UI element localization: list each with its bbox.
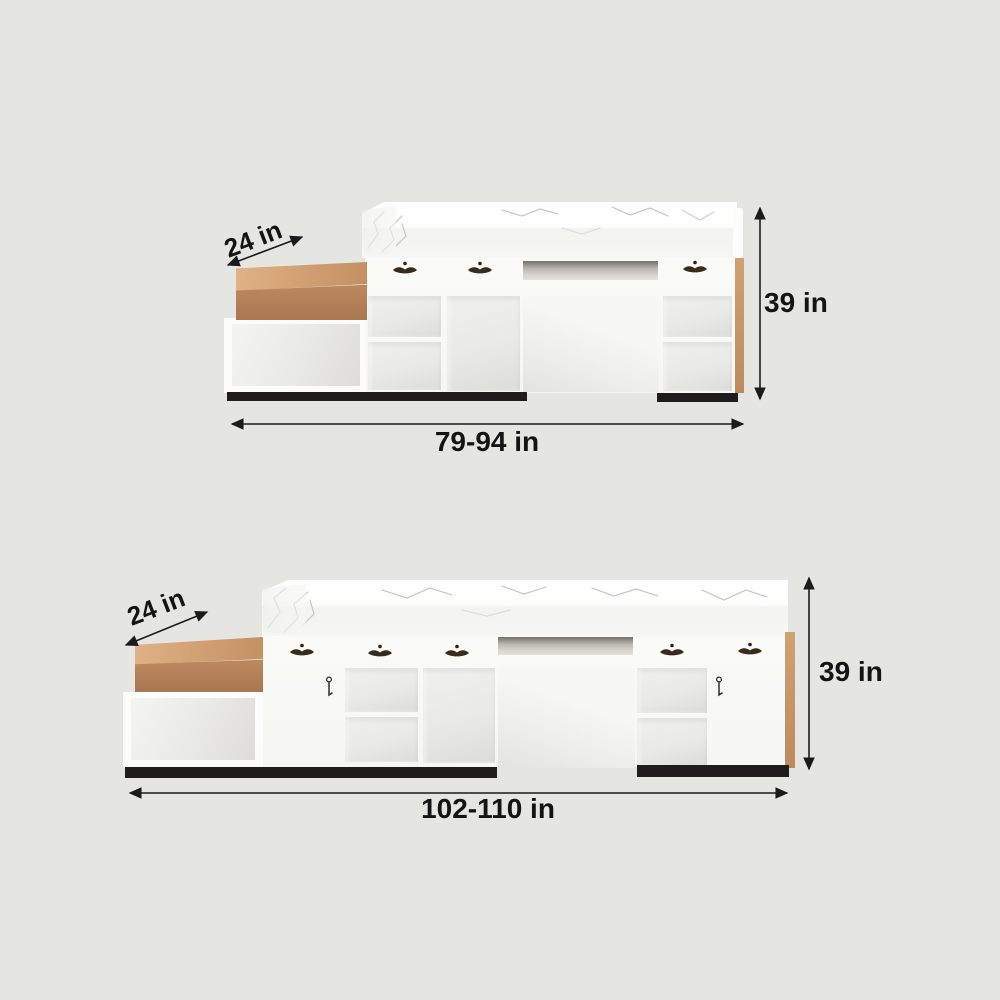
cubby xyxy=(663,342,732,391)
marble-side-face xyxy=(262,584,306,636)
drawer-handle-icon xyxy=(682,260,708,276)
cubby xyxy=(663,296,732,337)
drawer-recess xyxy=(523,261,658,280)
drawer-recess xyxy=(498,637,633,655)
marble-veins xyxy=(362,202,737,258)
cubby xyxy=(368,342,441,390)
marble-countertop xyxy=(262,580,788,636)
depth-label: 24 in xyxy=(104,575,208,639)
height-label: 39 in xyxy=(764,288,828,318)
counter-corner-post xyxy=(733,208,743,258)
drawer-handle-icon xyxy=(289,643,315,659)
product-dimension-diagram: 24 in 39 in 79-94 in xyxy=(0,0,1000,1000)
marble-countertop xyxy=(362,202,737,258)
drawer-handle-icon xyxy=(392,261,418,277)
drawer-handle-icon xyxy=(737,642,763,658)
cubby xyxy=(637,718,707,766)
cubby xyxy=(637,668,707,713)
kick-base xyxy=(125,767,497,778)
height-label: 39 in xyxy=(819,657,883,687)
kick-base xyxy=(637,765,789,777)
key-icon xyxy=(714,676,724,700)
kneehole xyxy=(523,296,659,392)
width-label: 102-110 in xyxy=(378,794,598,824)
drawer-handle-icon xyxy=(659,643,685,659)
kick-base xyxy=(657,393,738,402)
marble-veins xyxy=(262,580,788,636)
kick-base xyxy=(227,392,527,401)
dimension-arrows xyxy=(0,0,1000,1000)
cubby xyxy=(368,296,441,337)
drawer-handle-icon xyxy=(444,644,470,660)
cabinet-interior xyxy=(131,698,255,760)
marble-side-face xyxy=(362,206,396,256)
width-label: 79-94 in xyxy=(387,427,587,457)
wood-trim-edge xyxy=(785,632,795,768)
drawer-handle-icon xyxy=(367,644,393,660)
wood-return-front xyxy=(135,659,263,692)
kneehole xyxy=(498,668,635,768)
cubby xyxy=(423,668,495,763)
wood-trim-edge xyxy=(735,258,744,393)
key-icon xyxy=(324,676,334,700)
depth-label: 24 in xyxy=(201,207,305,271)
cubby xyxy=(345,668,418,712)
cubby xyxy=(447,296,520,391)
cabinet-interior xyxy=(232,324,360,386)
drawer-handle-icon xyxy=(467,261,493,277)
cubby xyxy=(345,717,418,762)
